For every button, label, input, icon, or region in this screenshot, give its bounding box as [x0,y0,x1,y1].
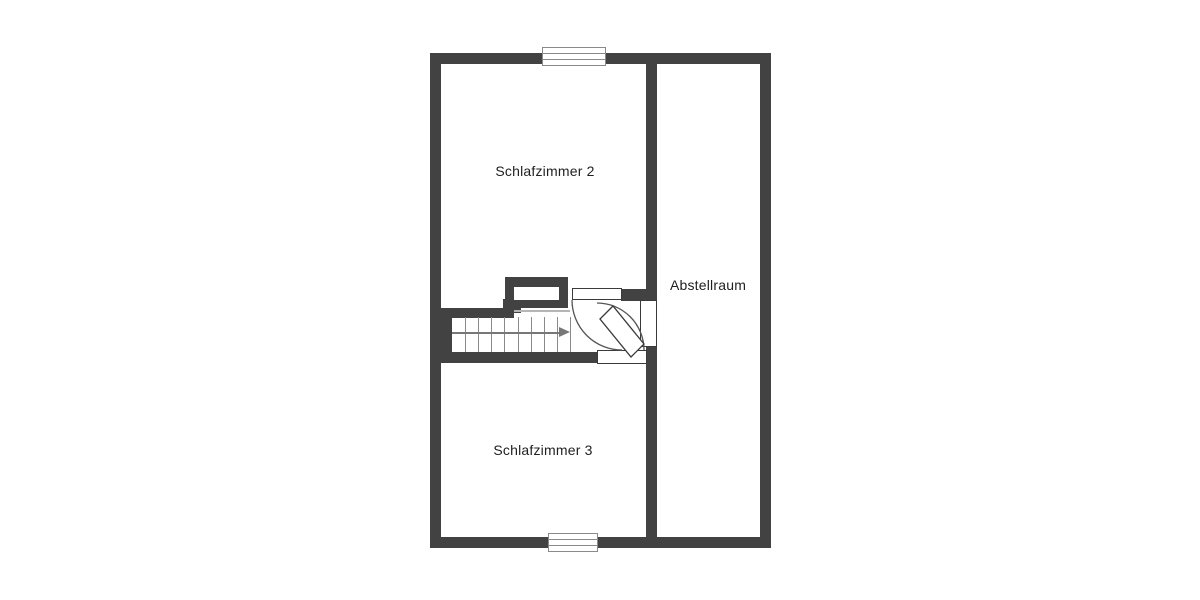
room-label-bedroom2: Schlafzimmer 2 [470,163,620,179]
stair-tread-line [504,317,505,352]
window-pane-line [543,59,605,60]
window-bottom [548,533,598,552]
window-pane-line [549,539,597,540]
room-label-storage: Abstellraum [633,277,783,293]
door-swings [550,280,680,375]
stair-tread-line [544,317,545,352]
stair-tread-line [518,317,519,352]
divider-wall-storage-bottom [646,347,657,539]
stair-tread-line [491,317,492,352]
outer-wall-right [760,53,771,548]
stair-tread-line [478,317,479,352]
window-pane-line [549,545,597,546]
room-label-bedroom3: Schlafzimmer 3 [468,442,618,458]
floor-plan: Schlafzimmer 2 Abstellraum Schlafzimmer … [0,0,1200,600]
outer-wall-bottom [430,537,771,548]
stair-tread-line [465,317,466,352]
stair-tread-line [531,317,532,352]
window-pane-line [543,53,605,54]
wall-stairwell-left [441,312,452,353]
window-top [542,47,606,66]
divider-wall-storage-top [646,62,657,300]
outer-wall-left [430,53,441,548]
stair-walk-line [452,332,562,334]
